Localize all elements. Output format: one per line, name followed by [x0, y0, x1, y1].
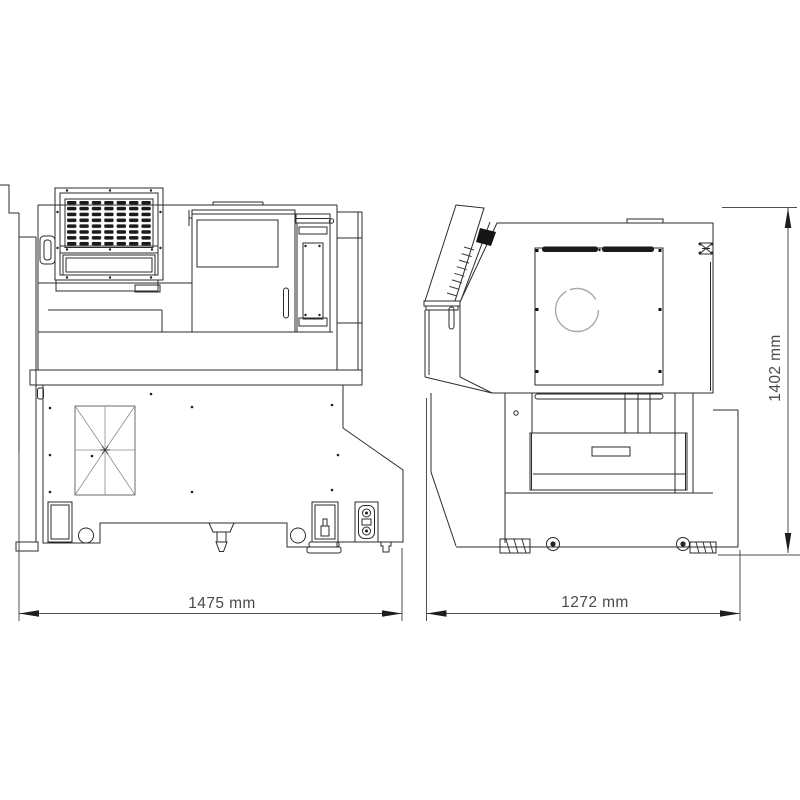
- left-foot-inner: [51, 505, 69, 539]
- left-tower: [0, 185, 36, 542]
- sliding-door: [189, 210, 295, 332]
- spindle-access-panel: [535, 247, 663, 400]
- sloped-pendant: [424, 205, 496, 393]
- side-handle: [40, 236, 55, 264]
- panel-groove: [535, 394, 663, 399]
- arrowhead-icon: [382, 610, 402, 617]
- dimension-label-side-width: 1272 mm: [561, 594, 628, 611]
- dimension-height: 1402 mm: [718, 208, 800, 556]
- door-handle: [284, 288, 289, 318]
- door-rail: [296, 214, 334, 332]
- hinge-bar: [602, 247, 654, 253]
- small-foot: [381, 542, 391, 552]
- caster-wheel: [677, 538, 690, 551]
- arrowhead-icon: [785, 533, 792, 553]
- base-band: [30, 370, 362, 385]
- chip-drawer: [530, 433, 687, 490]
- dimension-label-front-width: 1475 mm: [188, 595, 255, 612]
- levelling-plate: [307, 547, 341, 553]
- pin-mark: [514, 411, 518, 415]
- electrical-cabinet: [55, 188, 163, 292]
- arrowhead-icon: [427, 610, 447, 617]
- vent-grille-icon: [66, 200, 153, 247]
- arrowhead-icon: [785, 208, 792, 228]
- porthole-window: [556, 289, 599, 332]
- cross-brace-panel: [75, 406, 135, 495]
- arrowhead-icon: [19, 610, 39, 617]
- machine-base: [456, 410, 738, 553]
- drawer-handle: [592, 447, 630, 456]
- coolant-drain: [209, 523, 234, 552]
- lifting-point-icon: [699, 243, 713, 254]
- door-window: [197, 220, 278, 267]
- base-fittings: [48, 502, 391, 553]
- left-foot: [48, 502, 72, 542]
- support-columns: [431, 393, 693, 546]
- dimension-label-height: 1402 mm: [767, 334, 784, 401]
- drawing-page: 1475 mm 1272 mm 1402 mm: [0, 0, 800, 800]
- caster-wheel: [291, 528, 306, 543]
- levelling-plate: [309, 542, 339, 547]
- top-tab: [627, 219, 663, 223]
- machine-drawing-canvas: 1475 mm 1272 mm 1402 mm: [0, 0, 800, 800]
- front-view: [0, 185, 403, 553]
- side-view: [424, 205, 738, 553]
- arrowhead-icon: [720, 610, 740, 617]
- power-connector: [355, 502, 378, 542]
- caster-wheel: [79, 528, 94, 543]
- right-foot-bracket: [312, 502, 338, 542]
- hinge-bar: [542, 247, 598, 253]
- caster-wheel: [547, 538, 560, 551]
